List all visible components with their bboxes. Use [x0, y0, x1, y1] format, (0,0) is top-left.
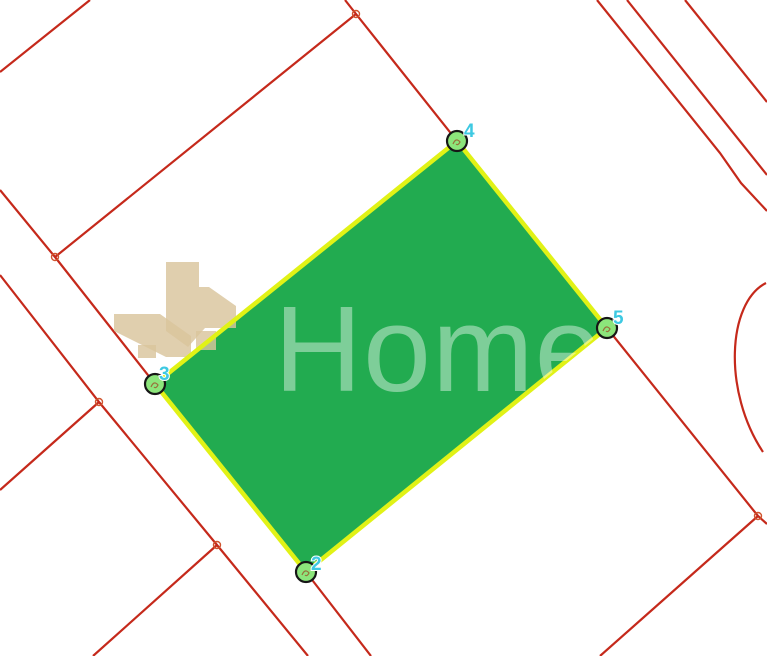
parcel-map-canvas: Home 2345: [0, 0, 767, 656]
cadastral-map: Home 2345: [0, 0, 767, 656]
road-line-to-vertex3: [0, 190, 155, 384]
road-line-to-vertex4: [345, 0, 457, 141]
road-line-j2-j1: [55, 14, 356, 257]
homeland-logo-shape-4: [138, 345, 156, 358]
road-line-j5-branch: [600, 516, 758, 656]
road-culdesac-arc: [735, 283, 766, 452]
vertex-label-2: 2: [311, 554, 322, 575]
vertex-marker-5[interactable]: 5: [597, 308, 624, 338]
watermark-text-layer: Home: [274, 281, 603, 417]
watermark-group: Home: [274, 281, 603, 417]
watermark-text: Home: [274, 281, 603, 417]
road-line-j3-branch: [0, 402, 99, 490]
road-line-from-vertex2: [306, 572, 371, 656]
road-line-topleft: [0, 0, 90, 72]
road-line-topright-2: [627, 0, 767, 175]
vertex-label-5: 5: [613, 308, 624, 329]
road-line-topright-1: [597, 0, 767, 211]
road-line-j4-branch: [93, 545, 217, 656]
vertex-label-4: 4: [464, 121, 475, 142]
road-line-from-vertex5: [607, 328, 767, 524]
vertex-marker-4[interactable]: 4: [447, 121, 475, 151]
vertex-label-3: 3: [159, 364, 170, 385]
